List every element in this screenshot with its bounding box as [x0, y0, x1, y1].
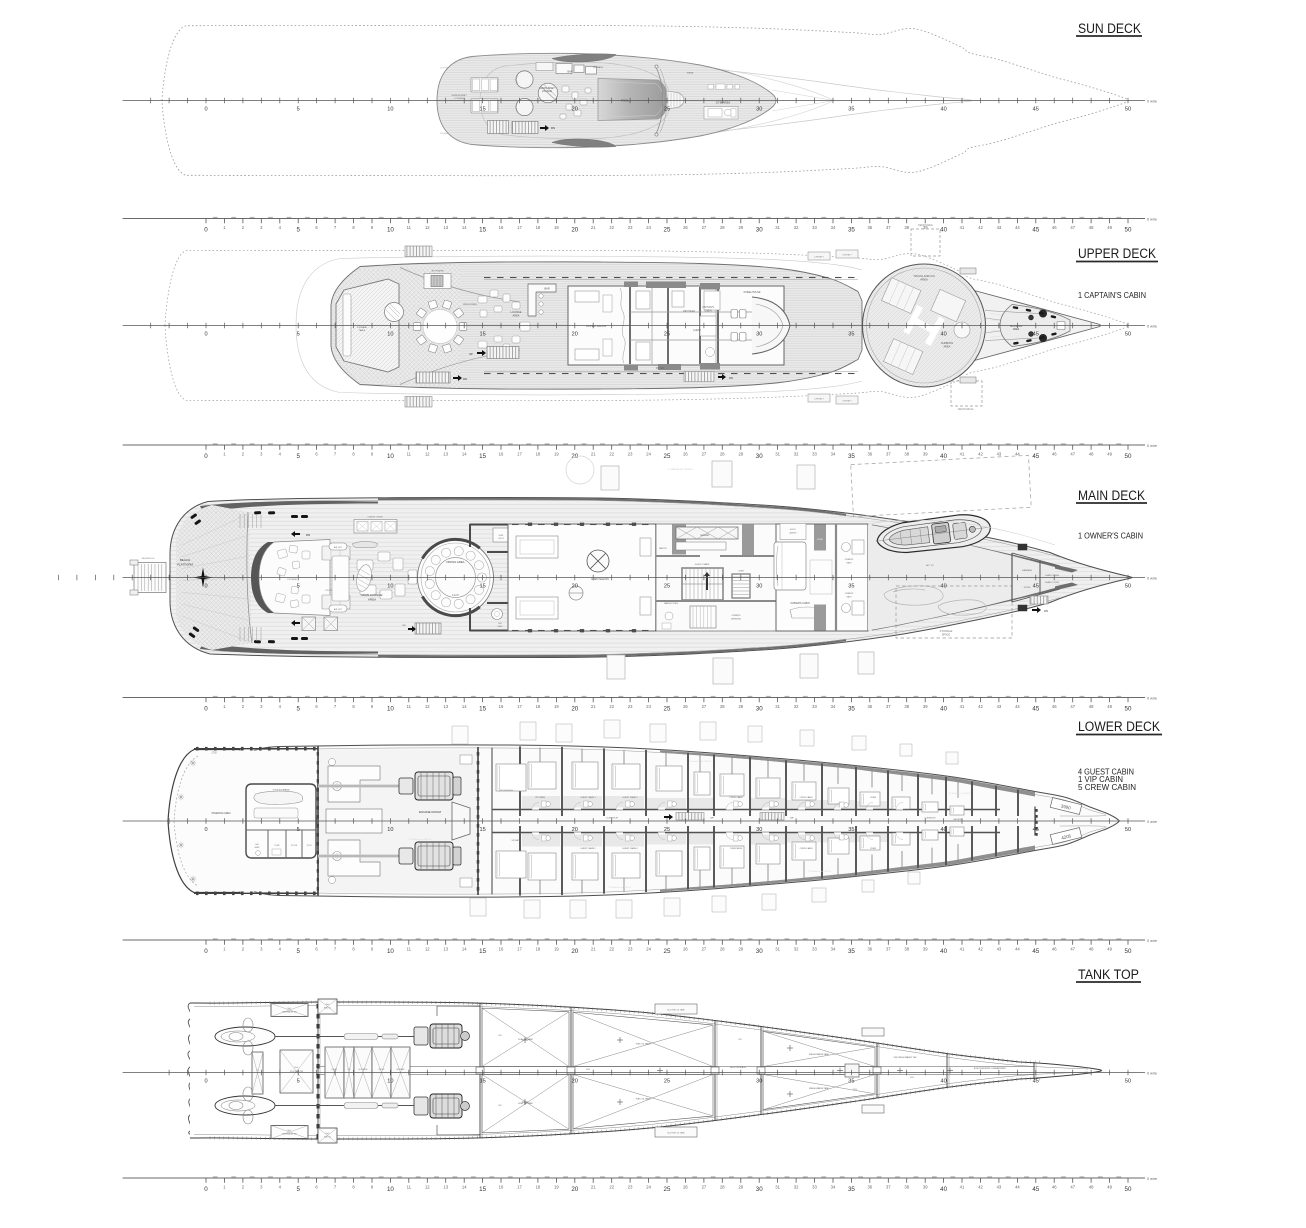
svg-text:38: 38	[904, 947, 909, 952]
svg-text:21: 21	[591, 1185, 596, 1190]
svg-text:27: 27	[702, 704, 707, 709]
svg-text:34: 34	[831, 1185, 836, 1190]
svg-text:50: 50	[1125, 706, 1132, 713]
svg-text:GUEST: GUEST	[693, 330, 702, 332]
svg-text:33: 33	[812, 1185, 817, 1190]
svg-text:10: 10	[387, 827, 393, 833]
svg-text:45: 45	[1032, 1186, 1039, 1193]
svg-text:0: 0	[204, 1079, 207, 1085]
svg-text:11: 11	[407, 1185, 412, 1190]
svg-text:22: 22	[609, 947, 614, 952]
svg-text:0 wire: 0 wire	[1147, 1071, 1157, 1075]
svg-text:0: 0	[204, 827, 207, 833]
svg-text:31: 31	[775, 947, 780, 952]
svg-text:UP: UP	[469, 352, 473, 356]
svg-text:1 CAPTAIN'S CABIN: 1 CAPTAIN'S CABIN	[1078, 291, 1146, 300]
svg-text:5: 5	[296, 453, 300, 460]
svg-text:19: 19	[554, 225, 559, 230]
svg-text:24: 24	[646, 947, 651, 952]
svg-text:44: 44	[1015, 225, 1020, 230]
svg-text:No.2 FUEL OIL TANK: No.2 FUEL OIL TANK	[667, 1009, 685, 1012]
svg-text:FUEL OIL TANK: FUEL OIL TANK	[636, 1098, 651, 1101]
svg-text:CABIN: CABIN	[704, 310, 711, 313]
svg-text:0 wire: 0 wire	[1147, 820, 1157, 824]
svg-text:P65 FRESH WATER TNK: P65 FRESH WATER TNK	[894, 1056, 918, 1059]
svg-text:49: 49	[1107, 225, 1112, 230]
svg-text:GARBAGE: GARBAGE	[1022, 569, 1033, 572]
svg-text:47: 47	[1070, 704, 1075, 709]
svg-text:GALLEY: GALLEY	[700, 534, 710, 537]
svg-text:25: 25	[664, 1079, 670, 1085]
svg-text:36: 36	[867, 1185, 872, 1190]
svg-text:21: 21	[591, 704, 596, 709]
svg-text:14: 14	[462, 1185, 467, 1190]
svg-text:0: 0	[204, 1186, 208, 1193]
svg-text:44: 44	[1015, 704, 1020, 709]
svg-text:TO MARINA 4M TENDER: TO MARINA 4M TENDER	[667, 468, 693, 471]
svg-text:35: 35	[848, 1186, 855, 1193]
svg-text:14: 14	[462, 704, 467, 709]
svg-text:49: 49	[1107, 1185, 1112, 1190]
svg-text:31: 31	[775, 704, 780, 709]
svg-text:CAPTAIN'S: CAPTAIN'S	[702, 306, 714, 309]
svg-text:0 wire: 0 wire	[1147, 939, 1157, 943]
svg-text:30: 30	[756, 227, 763, 234]
svg-text:WINE: WINE	[499, 535, 504, 537]
svg-text:FRESH WATER TANK: FRESH WATER TANK	[809, 1053, 830, 1056]
svg-text:LOWER DECK: LOWER DECK	[1078, 719, 1160, 734]
svg-text:38: 38	[904, 704, 909, 709]
svg-text:11: 11	[407, 947, 412, 952]
svg-text:48: 48	[1089, 1185, 1094, 1190]
svg-text:OWNER'S CABIN: OWNER'S CABIN	[790, 602, 809, 605]
svg-text:DN: DN	[1044, 610, 1048, 613]
svg-text:0 wire: 0 wire	[1147, 217, 1157, 221]
svg-text:FUEL OIL: FUEL OIL	[324, 1008, 331, 1010]
svg-text:44: 44	[1015, 947, 1020, 952]
svg-text:HEAD: HEAD	[498, 625, 504, 628]
svg-text:12: 12	[425, 225, 430, 230]
svg-text:45: 45	[1033, 107, 1039, 113]
svg-text:0: 0	[204, 332, 207, 338]
svg-text:CREW CABIN: CREW CABIN	[800, 847, 813, 850]
svg-text:38: 38	[904, 225, 909, 230]
svg-text:25: 25	[664, 453, 671, 460]
svg-text:21: 21	[591, 947, 596, 952]
svg-text:47: 47	[1070, 947, 1075, 952]
svg-text:37: 37	[886, 947, 891, 952]
svg-text:LIFERAFT: LIFERAFT	[814, 256, 824, 259]
svg-text:UP: UP	[710, 818, 714, 820]
svg-text:R50: R50	[498, 1035, 501, 1037]
svg-text:39: 39	[923, 704, 928, 709]
svg-text:CELLR: CELLR	[498, 538, 504, 540]
svg-text:STEERING AREA: STEERING AREA	[211, 812, 231, 815]
svg-text:0 wire: 0 wire	[1147, 1177, 1157, 1181]
svg-text:17: 17	[517, 452, 522, 457]
svg-text:10: 10	[387, 1079, 393, 1085]
svg-text:37: 37	[886, 452, 891, 457]
svg-text:32: 32	[794, 452, 799, 457]
svg-text:5: 5	[297, 827, 300, 833]
svg-text:46: 46	[1052, 1185, 1057, 1190]
svg-text:22: 22	[609, 452, 614, 457]
svg-text:FUEL OIL TANK: FUEL OIL TANK	[636, 1043, 651, 1046]
svg-text:18: 18	[536, 452, 541, 457]
svg-text:23: 23	[628, 1185, 633, 1190]
svg-text:HEAD: HEAD	[255, 846, 261, 849]
svg-text:17: 17	[517, 947, 522, 952]
svg-text:42: 42	[978, 1185, 983, 1190]
svg-text:20: 20	[572, 1079, 578, 1085]
svg-text:BATH: BATH	[847, 596, 852, 599]
svg-text:30: 30	[756, 107, 762, 113]
svg-text:AIR OUT: AIR OUT	[334, 546, 343, 549]
svg-text:16: 16	[499, 1185, 504, 1190]
svg-text:46: 46	[1052, 452, 1057, 457]
svg-text:32: 32	[794, 704, 799, 709]
svg-text:29: 29	[738, 452, 743, 457]
svg-text:BATH: BATH	[847, 562, 852, 565]
svg-text:DN: DN	[463, 377, 467, 381]
svg-text:AIR OUT: AIR OUT	[334, 608, 343, 611]
svg-text:No.1: No.1	[288, 1130, 292, 1132]
svg-text:AREA: AREA	[368, 598, 376, 602]
svg-text:CHAIN LOCKER: CHAIN LOCKER	[1045, 581, 1060, 584]
svg-text:5: 5	[296, 706, 300, 713]
svg-text:34: 34	[831, 704, 836, 709]
svg-text:No.1: No.1	[326, 1133, 330, 1135]
svg-text:25: 25	[664, 948, 671, 955]
svg-text:17: 17	[517, 704, 522, 709]
svg-text:35: 35	[848, 453, 855, 460]
svg-text:TABLE: TABLE	[359, 329, 366, 332]
svg-text:0: 0	[204, 948, 208, 955]
svg-text:0 wire: 0 wire	[1147, 696, 1157, 700]
svg-text:GLYCOL: GLYCOL	[379, 1069, 385, 1071]
svg-text:PASSERELLE: PASSERELLE	[142, 557, 156, 560]
svg-text:5: 5	[297, 107, 300, 113]
svg-text:VIP CABIN: VIP CABIN	[535, 796, 545, 799]
svg-text:35: 35	[848, 948, 855, 955]
svg-text:No.1: No.1	[288, 1008, 292, 1010]
svg-text:DN: DN	[551, 126, 555, 130]
svg-text:19: 19	[554, 1185, 559, 1190]
svg-text:SURF/SUNSET: SURF/SUNSET	[451, 95, 467, 97]
svg-text:30: 30	[756, 1186, 763, 1193]
svg-text:50: 50	[1125, 107, 1131, 113]
svg-text:15: 15	[479, 1079, 485, 1085]
svg-text:25: 25	[664, 827, 670, 833]
svg-text:42: 42	[978, 452, 983, 457]
svg-text:22: 22	[609, 704, 614, 709]
svg-text:40: 40	[940, 332, 946, 338]
svg-text:50: 50	[1125, 948, 1132, 955]
svg-text:24: 24	[646, 225, 651, 230]
svg-text:DRY HEAD: DRY HEAD	[683, 310, 695, 313]
svg-text:21: 21	[591, 225, 596, 230]
svg-text:26: 26	[683, 1185, 688, 1190]
svg-text:W20: W20	[853, 1089, 857, 1091]
svg-text:47: 47	[1070, 1185, 1075, 1190]
svg-text:39: 39	[923, 947, 928, 952]
svg-text:GUEST CABIN 1: GUEST CABIN 1	[580, 796, 596, 799]
svg-text:17: 17	[517, 225, 522, 230]
svg-text:25: 25	[664, 227, 671, 234]
svg-text:DN: DN	[306, 533, 310, 537]
svg-text:10: 10	[387, 107, 393, 113]
svg-text:5: 5	[296, 1186, 300, 1193]
svg-text:30: 30	[756, 827, 762, 833]
svg-text:5: 5	[297, 584, 300, 590]
svg-text:P2: P2	[256, 1070, 258, 1072]
svg-text:0 wire: 0 wire	[1147, 324, 1157, 328]
svg-text:14: 14	[462, 225, 467, 230]
svg-text:43: 43	[997, 452, 1002, 457]
svg-text:24: 24	[646, 704, 651, 709]
svg-text:CABINET: CABINET	[789, 532, 798, 535]
svg-text:22: 22	[609, 1185, 614, 1190]
svg-text:18: 18	[536, 947, 541, 952]
svg-text:32: 32	[794, 1185, 799, 1190]
svg-text:40: 40	[940, 948, 947, 955]
svg-text:3D Modelica del 1269/19: 3D Modelica del 1269/19	[609, 887, 632, 889]
svg-text:JET TENDER: JET TENDER	[431, 271, 444, 273]
svg-text:0 wire: 0 wire	[1147, 444, 1157, 448]
svg-text:36: 36	[867, 452, 872, 457]
svg-text:W20: W20	[910, 1077, 914, 1079]
svg-text:15: 15	[479, 227, 486, 234]
svg-text:FRESH WATER TANK: FRESH WATER TANK	[809, 1087, 830, 1090]
svg-text:CORRIDOR: CORRIDOR	[606, 818, 618, 820]
svg-text:15: 15	[479, 107, 485, 113]
svg-text:41: 41	[960, 1185, 965, 1190]
svg-text:SPACE: SPACE	[942, 633, 951, 637]
svg-text:28: 28	[720, 452, 725, 457]
svg-text:PANTRY: PANTRY	[659, 547, 668, 550]
svg-text:5: 5	[296, 227, 300, 234]
svg-text:28: 28	[720, 225, 725, 230]
svg-text:33: 33	[812, 225, 817, 230]
svg-text:WINDSCREEN: WINDSCREEN	[463, 304, 477, 306]
svg-text:20: 20	[571, 1186, 578, 1193]
svg-text:5: 5	[296, 948, 300, 955]
svg-text:LIFERAFT: LIFERAFT	[842, 254, 852, 257]
svg-text:30: 30	[756, 948, 763, 955]
svg-text:19: 19	[554, 704, 559, 709]
svg-text:31: 31	[775, 452, 780, 457]
svg-text:16: 16	[499, 704, 504, 709]
svg-text:45: 45	[1033, 827, 1039, 833]
svg-text:44: 44	[1015, 1185, 1020, 1190]
svg-text:REMOVABLE: REMOVABLE	[918, 224, 933, 227]
svg-text:10: 10	[387, 227, 394, 234]
svg-text:32: 32	[794, 947, 799, 952]
svg-text:0: 0	[204, 706, 208, 713]
svg-text:42: 42	[978, 704, 983, 709]
svg-text:27: 27	[702, 225, 707, 230]
svg-text:3D Modelica del 1269/19: 3D Modelica del 1269/19	[809, 871, 832, 873]
svg-text:45: 45	[1032, 227, 1039, 234]
svg-text:50: 50	[1125, 227, 1132, 234]
svg-text:WHEELHOUSE: WHEELHOUSE	[743, 291, 760, 294]
svg-text:29: 29	[738, 704, 743, 709]
svg-text:43: 43	[997, 225, 1002, 230]
svg-text:47: 47	[1070, 452, 1075, 457]
svg-text:20: 20	[571, 948, 578, 955]
svg-text:14: 14	[462, 947, 467, 952]
svg-text:GYM AREA: GYM AREA	[716, 101, 731, 105]
svg-text:0: 0	[204, 227, 208, 234]
svg-text:CREW CABIN: CREW CABIN	[800, 796, 813, 799]
svg-text:50: 50	[1125, 332, 1131, 338]
svg-text:CREW: CREW	[738, 571, 744, 573]
svg-text:23: 23	[628, 452, 633, 457]
svg-text:5: 5	[297, 1079, 300, 1085]
svg-text:38: 38	[904, 452, 909, 457]
svg-text:FUEL OIL: FUEL OIL	[324, 1137, 331, 1139]
svg-text:33: 33	[812, 704, 817, 709]
svg-text:48: 48	[1089, 704, 1094, 709]
svg-text:45: 45	[1032, 706, 1039, 713]
svg-text:No.1: No.1	[326, 1004, 330, 1006]
svg-text:15: 15	[479, 1186, 486, 1193]
svg-text:AUDIO: AUDIO	[790, 528, 796, 531]
svg-text:26: 26	[683, 704, 688, 709]
svg-text:MAIN LOUNGE: MAIN LOUNGE	[361, 593, 382, 597]
svg-text:45: 45	[1033, 332, 1039, 338]
svg-text:31: 31	[775, 1185, 780, 1190]
svg-text:34: 34	[831, 452, 836, 457]
svg-text:LUB OIL: LUB OIL	[332, 1069, 338, 1071]
svg-text:35: 35	[848, 227, 855, 234]
svg-text:29: 29	[738, 225, 743, 230]
svg-text:40: 40	[940, 1186, 947, 1193]
svg-text:49: 49	[1107, 452, 1112, 457]
svg-text:23: 23	[628, 225, 633, 230]
svg-text:40: 40	[940, 584, 946, 590]
svg-text:45: 45	[1032, 948, 1039, 955]
svg-text:CREW: CREW	[870, 848, 876, 850]
svg-text:11: 11	[407, 452, 412, 457]
svg-text:30: 30	[756, 706, 763, 713]
svg-text:25: 25	[664, 1186, 671, 1193]
svg-text:22: 22	[609, 225, 614, 230]
svg-text:R50: R50	[498, 1105, 501, 1107]
svg-text:No.1: No.1	[295, 1067, 299, 1069]
svg-text:33: 33	[812, 947, 817, 952]
svg-text:43: 43	[997, 704, 1002, 709]
svg-text:R35: R35	[738, 1039, 741, 1041]
svg-text:34: 34	[831, 947, 836, 952]
svg-text:10: 10	[387, 453, 394, 460]
svg-text:40: 40	[940, 453, 947, 460]
svg-text:CREW CABIN: CREW CABIN	[730, 796, 743, 799]
svg-text:3D Modelica del 1269/19: 3D Modelica del 1269/19	[689, 761, 712, 763]
svg-text:11: 11	[407, 704, 412, 709]
svg-text:19: 19	[554, 452, 559, 457]
svg-text:LIFERAFT: LIFERAFT	[842, 400, 852, 403]
svg-text:40: 40	[940, 706, 947, 713]
svg-text:GUEST CABIN 2: GUEST CABIN 2	[580, 847, 596, 850]
svg-text:39: 39	[923, 452, 928, 457]
svg-text:37: 37	[886, 704, 891, 709]
svg-text:30: 30	[756, 332, 762, 338]
svg-text:30: 30	[756, 584, 762, 590]
svg-text:38: 38	[904, 1185, 909, 1190]
svg-text:DTY: DTY	[348, 1069, 351, 1071]
svg-text:STORAGE: STORAGE	[287, 578, 297, 581]
svg-text:20: 20	[572, 827, 578, 833]
svg-text:42: 42	[978, 225, 983, 230]
svg-text:AREA: AREA	[1013, 328, 1020, 331]
svg-text:36: 36	[867, 947, 872, 952]
svg-text:50: 50	[1125, 1186, 1132, 1193]
svg-text:0 wire: 0 wire	[1147, 576, 1157, 580]
svg-text:UPPER SALON: UPPER SALON	[586, 324, 606, 328]
svg-text:WBAR: WBAR	[687, 72, 694, 75]
svg-text:40: 40	[940, 107, 946, 113]
svg-text:11: 11	[407, 225, 412, 230]
svg-text:CHAISE CHAIR: CHAISE CHAIR	[367, 516, 383, 519]
svg-text:ENGINE ROOM: ENGINE ROOM	[419, 810, 441, 814]
svg-text:35: 35	[848, 107, 854, 113]
svg-text:AREA: AREA	[512, 314, 519, 318]
svg-text:12: 12	[425, 452, 430, 457]
svg-text:20: 20	[572, 107, 578, 113]
svg-text:30: 30	[756, 1079, 762, 1085]
svg-text:28: 28	[720, 1185, 725, 1190]
svg-text:41: 41	[960, 225, 965, 230]
svg-text:A 12 P: A 12 P	[452, 594, 459, 597]
svg-text:CHAIN LOCKER: CHAIN LOCKER	[1045, 574, 1060, 577]
svg-text:No.3 FUEL OIL TANK: No.3 FUEL OIL TANK	[667, 1132, 685, 1135]
svg-text:12: 12	[425, 1185, 430, 1190]
svg-text:MAIN DECK: MAIN DECK	[1078, 488, 1145, 503]
svg-text:13: 13	[443, 225, 448, 230]
svg-text:15: 15	[479, 453, 486, 460]
svg-text:STORE: STORE	[291, 845, 298, 847]
svg-text:CREW MESS: CREW MESS	[730, 848, 743, 850]
svg-text:25: 25	[664, 332, 670, 338]
svg-text:UPPER DECK: UPPER DECK	[1078, 246, 1156, 261]
svg-text:48: 48	[1089, 947, 1094, 952]
svg-text:49: 49	[1107, 704, 1112, 709]
svg-text:45: 45	[1033, 584, 1039, 590]
svg-text:29: 29	[738, 947, 743, 952]
svg-text:18: 18	[536, 225, 541, 230]
svg-text:LOUNGE: LOUNGE	[511, 310, 522, 314]
svg-text:37: 37	[886, 225, 891, 230]
svg-text:49: 49	[1107, 947, 1112, 952]
svg-text:5 CREW CABIN: 5 CREW CABIN	[1078, 783, 1136, 792]
svg-text:43: 43	[997, 1185, 1002, 1190]
svg-text:15: 15	[479, 706, 486, 713]
svg-text:20: 20	[571, 706, 578, 713]
svg-text:14: 14	[462, 452, 467, 457]
svg-text:20: 20	[572, 332, 578, 338]
svg-text:13: 13	[443, 704, 448, 709]
svg-text:33: 33	[812, 452, 817, 457]
svg-text:18: 18	[536, 1185, 541, 1190]
svg-text:0: 0	[204, 453, 208, 460]
svg-text:17: 17	[517, 1185, 522, 1190]
svg-text:21: 21	[591, 452, 596, 457]
svg-text:12: 12	[425, 704, 430, 709]
svg-text:37: 37	[886, 1185, 891, 1190]
svg-text:20: 20	[571, 227, 578, 234]
svg-text:LIFERAFT: LIFERAFT	[814, 398, 824, 401]
